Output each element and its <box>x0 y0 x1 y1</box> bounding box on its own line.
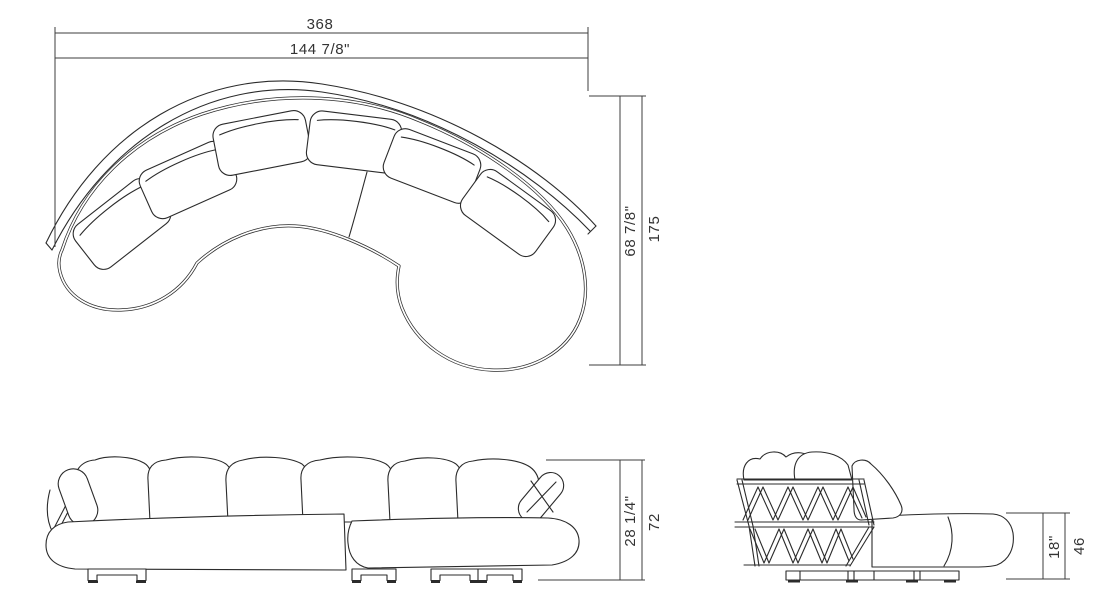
dim-seat-height-inches-label: 18" <box>1046 535 1063 559</box>
front-seat-chaise <box>348 518 579 568</box>
dim-seat-height: 18" 46 <box>1006 513 1088 579</box>
side-view <box>735 452 1013 583</box>
dim-height-cm-label: 72 <box>646 513 663 531</box>
top-view <box>46 81 596 370</box>
side-base <box>786 571 959 583</box>
technical-drawing-page: 368 144 7/8" 68 7/8" 175 28 1/4" 72 18" … <box>0 0 1102 608</box>
front-feet <box>88 569 522 583</box>
dim-width-cm-label: 368 <box>307 16 334 33</box>
dim-height-inches-label: 28 1/4" <box>622 495 639 546</box>
dim-depth-cm-label: 175 <box>646 216 663 243</box>
side-seat <box>872 514 1013 567</box>
dim-depth-inches-label: 68 7/8" <box>622 205 639 256</box>
front-seat-left <box>46 514 346 570</box>
dim-seat-height-cm-label: 46 <box>1071 537 1088 555</box>
front-view <box>46 457 579 583</box>
side-back-cushion <box>852 460 902 520</box>
dim-overall-depth: 68 7/8" 175 <box>589 96 663 365</box>
sofa-dimension-drawing: 368 144 7/8" 68 7/8" 175 28 1/4" 72 18" … <box>0 0 1102 608</box>
dim-width-inches-label: 144 7/8" <box>290 41 350 58</box>
front-back-cushions <box>74 457 539 522</box>
